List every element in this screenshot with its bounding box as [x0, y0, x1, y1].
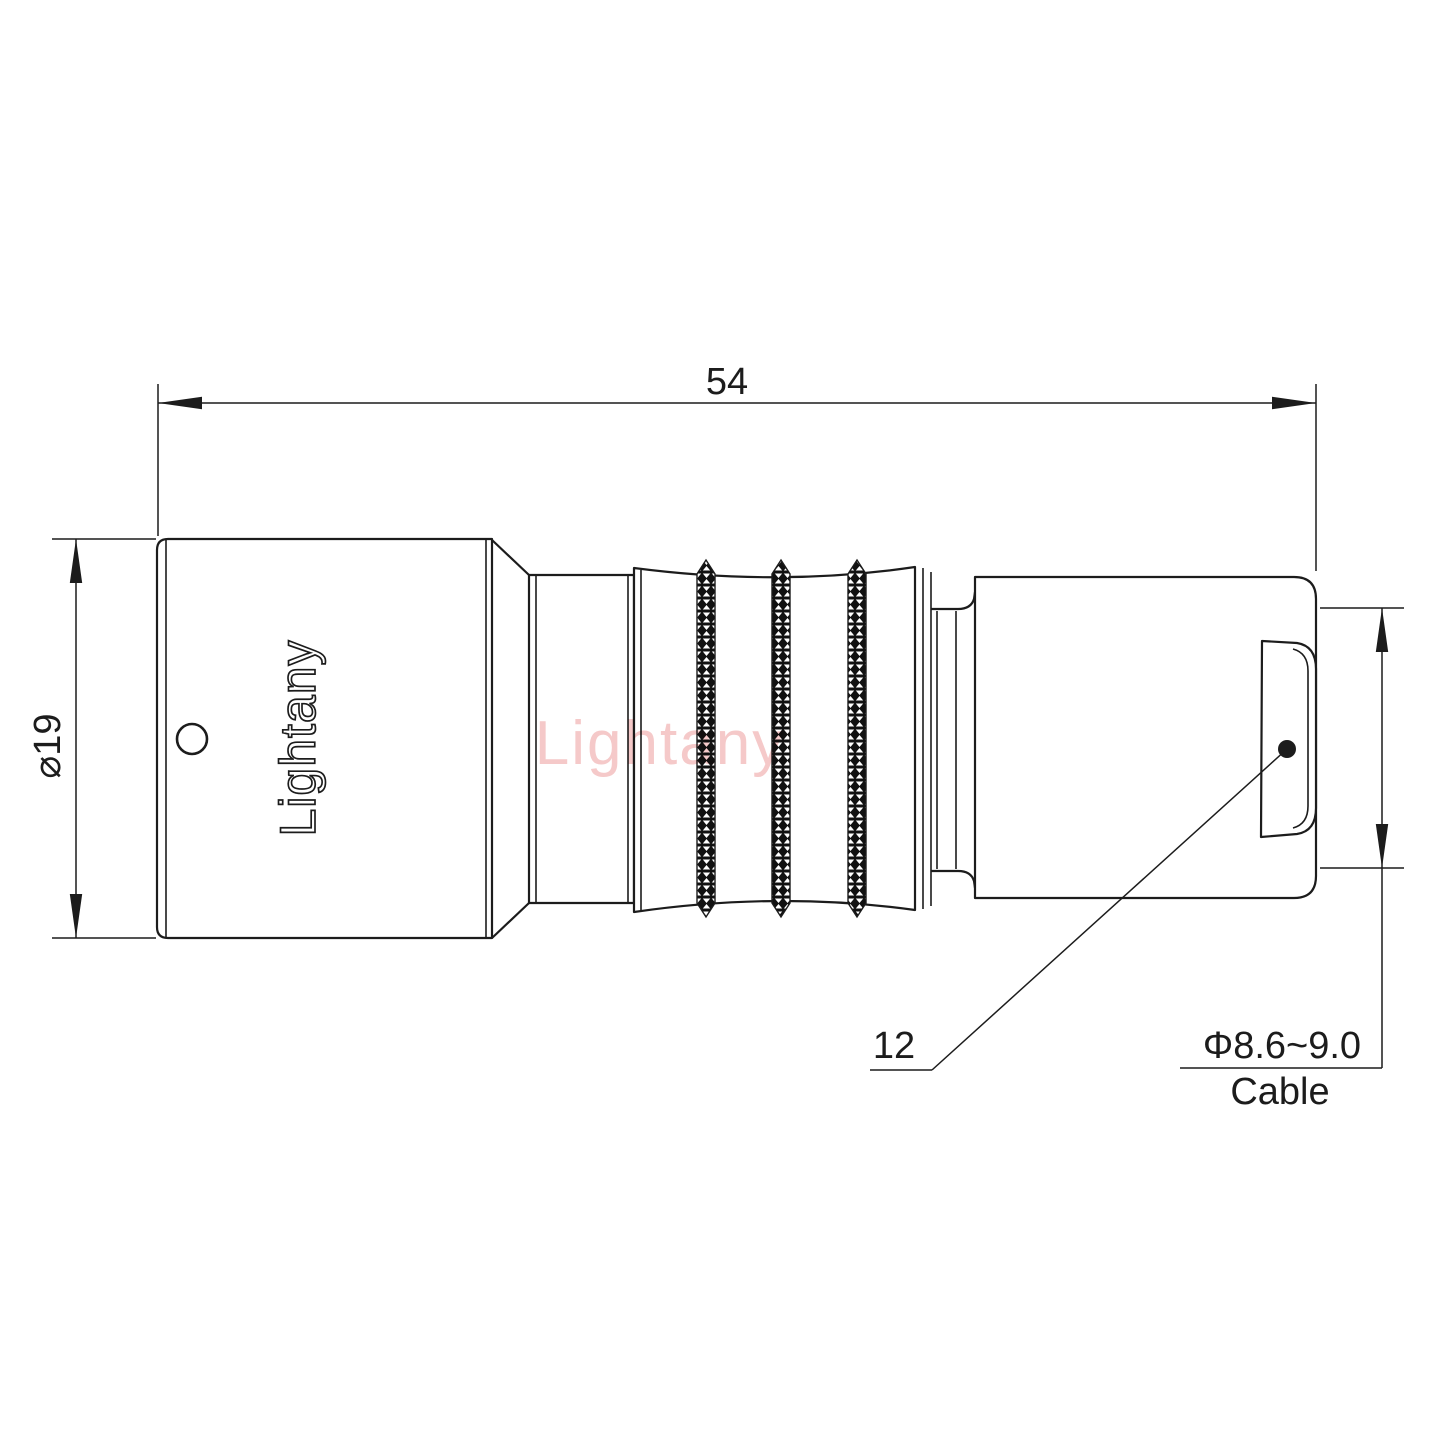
dimension-value: 12 — [873, 1025, 915, 1067]
arrowhead-top — [1376, 608, 1388, 652]
sleeve-pilot-hole — [177, 724, 207, 754]
arrowhead-top — [70, 539, 82, 583]
watermark-text: Lightany — [535, 709, 785, 778]
arrowhead-left — [158, 397, 202, 409]
arrowhead-bottom — [70, 894, 82, 938]
technical-drawing-page: Lightany Lightany 54 ⌀19 — [0, 0, 1440, 1440]
neck-groove-bottom — [931, 871, 975, 888]
taper-bottom-line — [492, 903, 529, 938]
connector-drawing: Lightany Lightany 54 ⌀19 — [0, 0, 1440, 1440]
dimension-body-diameter: ⌀19 — [27, 539, 156, 938]
knurl-band — [848, 560, 866, 917]
cable-diameter-value: Φ8.6~9.0 — [1203, 1025, 1361, 1067]
taper-top-line — [492, 540, 529, 575]
arrowhead-right — [1272, 397, 1316, 409]
arrowhead-bottom — [1376, 824, 1388, 868]
neck-groove-top — [931, 592, 975, 609]
dimension-value: 54 — [706, 361, 748, 403]
brand-engraving-text: Lightany — [270, 639, 326, 836]
cable-label: Cable — [1230, 1071, 1329, 1113]
dimension-value: ⌀19 — [27, 713, 69, 778]
